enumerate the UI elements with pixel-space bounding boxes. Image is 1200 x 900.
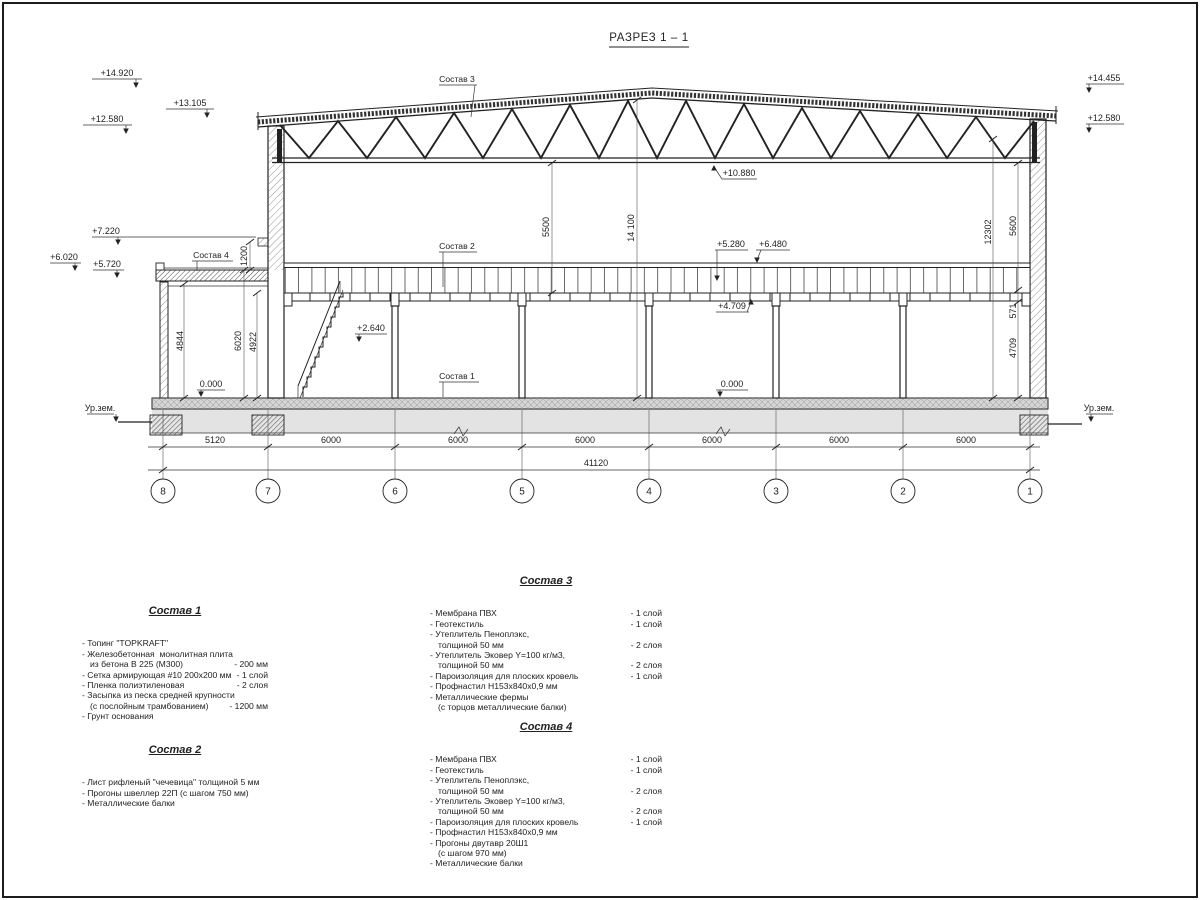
spec-block-sostav-3: Состав 3 - Мембрана ПВХ- 1 слой - Геотек… (430, 576, 662, 712)
svg-text:6000: 6000 (448, 435, 468, 445)
section-drawing: РАЗРЕЗ 1 – 1 (0, 0, 1200, 530)
foundation-pad (150, 415, 182, 435)
svg-text:14 100: 14 100 (626, 214, 636, 242)
spec-item: - Лист рифленый "чечевица" толщиной 5 мм (82, 777, 268, 787)
svg-text:41120: 41120 (584, 458, 608, 468)
spec-block-sostav-2: Состав 2 - Лист рифленый "чечевица" толщ… (82, 745, 268, 809)
spec-item: - Пароизоляция для плоских кровель- 1 сл… (430, 671, 662, 681)
svg-text:6000: 6000 (575, 435, 595, 445)
svg-text:Состав 4: Состав 4 (193, 250, 229, 260)
elevation-mark: +7.220 (92, 226, 256, 245)
svg-text:Состав 3: Состав 3 (439, 74, 475, 84)
vertical-dimensions: 5500 14 100 12302 5600 571 4709 4844 602… (175, 97, 1022, 401)
spec-item: - Прогоны двутавр 20Ш1 (430, 838, 662, 848)
svg-text:+13.105: +13.105 (174, 98, 207, 108)
svg-text:+6.480: +6.480 (759, 239, 787, 249)
spec-item: - Грунт основания (82, 711, 268, 721)
spec-item: - Металлические балки (82, 798, 268, 808)
spec-item: - Топинг "TOPKRAFT" (82, 638, 268, 648)
ground-level-mark: Ур.зем. (85, 403, 119, 422)
ground-level-mark: Ур.зем. (1084, 403, 1115, 422)
svg-text:12302: 12302 (983, 219, 993, 244)
svg-text:+6.020: +6.020 (50, 252, 78, 262)
spec-item: из бетона В 225 (М300)- 200 мм (82, 659, 268, 669)
svg-text:4922: 4922 (248, 332, 258, 352)
svg-text:4844: 4844 (175, 331, 185, 351)
svg-text:+5.280: +5.280 (717, 239, 745, 249)
svg-text:6020: 6020 (233, 331, 243, 351)
mezzanine-deck (284, 263, 1030, 306)
svg-text:+5.720: +5.720 (93, 259, 121, 269)
grid-bubble: 3 (773, 487, 779, 498)
spec-item: - Пароизоляция для плоских кровель- 1 сл… (430, 817, 662, 827)
svg-text:Ур.зем.: Ур.зем. (1084, 403, 1115, 413)
spec-item: - Железобетонная монолитная плита (82, 649, 268, 659)
drawing-title: РАЗРЕЗ 1 – 1 (609, 32, 689, 47)
spec-item: - Засыпка из песка средней крупности (82, 690, 268, 700)
spec-item: - Профнастил Н153х840х0,9 мм (430, 827, 662, 837)
spec-item: - Прогоны швеллер 22П (с шагом 750 мм) (82, 788, 268, 798)
elevation-mark: +2.640 (355, 323, 387, 342)
elevation-mark: +13.105 (166, 98, 214, 118)
svg-text:+2.640: +2.640 (357, 323, 385, 333)
spec-item: - Утеплитель Пеноплэкс, (430, 775, 662, 785)
spec-item: - Утеплитель Эковер Y=100 кг/м3, (430, 650, 662, 660)
wall-ledge (258, 238, 268, 246)
spec-item: - Мембрана ПВХ- 1 слой (430, 608, 662, 618)
roof-truss (256, 88, 1058, 163)
svg-text:6000: 6000 (956, 435, 976, 445)
svg-text:+12.580: +12.580 (1088, 113, 1121, 123)
elevation-mark: +12.580 (83, 114, 132, 134)
drawing-sheet: РАЗРЕЗ 1 – 1 (0, 0, 1200, 900)
elevation-mark: +12.580 (1086, 113, 1124, 133)
grid-bubble: 1 (1027, 487, 1033, 498)
spec-item: - Утеплитель Пеноплэкс, (430, 629, 662, 639)
svg-text:5500: 5500 (541, 217, 551, 237)
spec-item: - Утеплитель Эковер Y=100 кг/м3, (430, 796, 662, 806)
spec-item: (с послойным трамбованием)- 1200 мм (82, 701, 268, 711)
spec-item: - Геотекстиль- 1 слой (430, 619, 662, 629)
elevation-mark: +6.020 (50, 252, 81, 271)
svg-text:+14.455: +14.455 (1088, 73, 1121, 83)
svg-text:571: 571 (1008, 303, 1018, 318)
leader-sostav1: Состав 1 (439, 371, 479, 397)
deck-beam (645, 293, 653, 306)
elevation-mark: 0.000 (716, 379, 748, 397)
svg-text:0.000: 0.000 (721, 379, 744, 389)
elevation-marks: +14.920 +13.105 +12.580 +7.220 +6.020 +5… (50, 68, 1124, 422)
spec-block-sostav-4: Состав 4 - Мембрана ПВХ- 1 слой - Геотек… (430, 722, 662, 869)
elevation-mark: +6.480 (754, 239, 790, 263)
spec-heading: Состав 1 (82, 606, 268, 616)
spec-item: - Профнастил Н153х840х0,9 мм (430, 681, 662, 691)
elevation-mark: 0.000 (197, 379, 225, 397)
spec-heading: Состав 3 (430, 576, 662, 586)
grid-bubble: 8 (160, 487, 166, 498)
grid-bubble: 6 (392, 487, 398, 498)
deck-beam (1022, 293, 1030, 306)
svg-text:РАЗРЕЗ 1 – 1: РАЗРЕЗ 1 – 1 (609, 32, 688, 44)
deck-beam (284, 293, 292, 306)
spec-item: - Мембрана ПВХ- 1 слой (430, 754, 662, 764)
elevation-mark: +14.920 (92, 68, 142, 88)
grid-bubble: 2 (900, 487, 906, 498)
elevation-mark: +5.720 (93, 259, 124, 278)
spec-item: - Металлические балки (430, 858, 662, 868)
svg-text:+7.220: +7.220 (92, 226, 120, 236)
svg-text:5600: 5600 (1008, 216, 1018, 236)
deck-beam (391, 293, 399, 306)
grid-bubble: 7 (265, 487, 271, 498)
spec-block-sostav-1: Состав 1 - Топинг "TOPKRAFT" - Железобет… (82, 606, 268, 722)
ground-and-foundation (118, 398, 1082, 436)
spec-item: толщиной 50 мм- 2 слоя (430, 786, 662, 796)
interior-columns (392, 306, 906, 398)
svg-text:6000: 6000 (829, 435, 849, 445)
foundation-pad (1020, 415, 1048, 435)
svg-text:Состав 2: Состав 2 (439, 241, 475, 251)
svg-text:0.000: 0.000 (200, 379, 223, 389)
deck-beam (772, 293, 780, 306)
svg-text:+4.709: +4.709 (718, 301, 746, 311)
grid-bubble: 5 (519, 487, 525, 498)
svg-text:+10.880: +10.880 (723, 168, 756, 178)
spec-item: (с шагом 970 мм) (430, 848, 662, 858)
annex-left (156, 263, 284, 398)
grid-bubble: 4 (646, 487, 652, 498)
svg-text:Состав 1: Состав 1 (439, 371, 475, 381)
svg-text:1200: 1200 (239, 246, 249, 266)
svg-text:6000: 6000 (321, 435, 341, 445)
spec-item: (с торцов металлические балки) (430, 702, 662, 712)
spec-item: - Сетка армирующая #10 200x200 мм- 1 сло… (82, 670, 268, 680)
elevation-mark: +10.880 (711, 165, 757, 179)
spec-item: толщиной 50 мм- 2 слоя (430, 660, 662, 670)
svg-text:Ур.зем.: Ур.зем. (85, 403, 116, 413)
spec-item: толщиной 50 мм- 2 слоя (430, 640, 662, 650)
spec-item: толщиной 50 мм- 2 слоя (430, 806, 662, 816)
spec-item: - Пленка полиэтиленовая- 2 слоя (82, 680, 268, 690)
spec-item: - Геотекстиль- 1 слой (430, 765, 662, 775)
svg-text:5120: 5120 (205, 435, 225, 445)
spec-item: - Металлические фермы (430, 692, 662, 702)
spec-heading: Состав 2 (82, 745, 268, 755)
svg-text:4709: 4709 (1008, 338, 1018, 358)
deck-beam (518, 293, 526, 306)
svg-text:+14.920: +14.920 (101, 68, 134, 78)
svg-text:6000: 6000 (702, 435, 722, 445)
spec-heading: Состав 4 (430, 722, 662, 732)
elevation-mark: +14.455 (1086, 73, 1124, 93)
svg-text:+12.580: +12.580 (91, 114, 124, 124)
grid-axes: 8 7 6 5 4 3 2 1 (151, 479, 1042, 503)
deck-beam (899, 293, 907, 306)
